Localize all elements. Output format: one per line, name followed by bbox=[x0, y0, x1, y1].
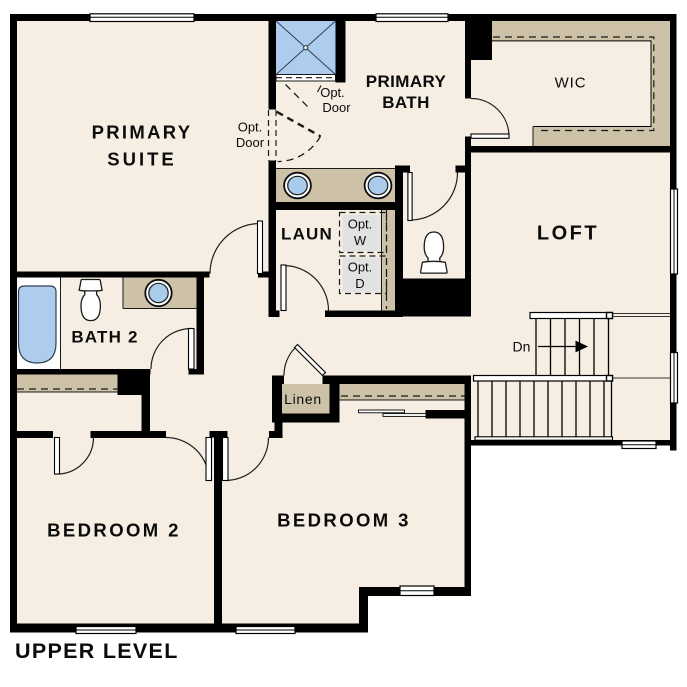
svg-text:Dn: Dn bbox=[513, 339, 531, 355]
svg-text:PRIMARY: PRIMARY bbox=[92, 122, 193, 143]
svg-text:LOFT: LOFT bbox=[537, 223, 599, 245]
svg-text:BEDROOM 2: BEDROOM 2 bbox=[47, 520, 181, 541]
svg-text:SUITE: SUITE bbox=[107, 149, 176, 170]
svg-text:BATH 2: BATH 2 bbox=[71, 328, 138, 347]
svg-text:Opt.: Opt. bbox=[320, 85, 345, 100]
svg-text:UPPER LEVEL: UPPER LEVEL bbox=[15, 639, 179, 663]
svg-text:Linen: Linen bbox=[284, 391, 322, 407]
svg-text:BEDROOM 3: BEDROOM 3 bbox=[277, 510, 411, 531]
svg-text:W: W bbox=[354, 233, 367, 248]
svg-text:D: D bbox=[355, 276, 364, 291]
svg-text:Opt.: Opt. bbox=[348, 260, 373, 275]
svg-text:PRIMARY: PRIMARY bbox=[366, 72, 447, 91]
svg-text:LAUN: LAUN bbox=[281, 225, 333, 244]
svg-text:Opt.: Opt. bbox=[348, 217, 373, 232]
svg-text:BATH: BATH bbox=[382, 93, 430, 112]
svg-text:WIC: WIC bbox=[555, 75, 587, 92]
svg-text:Door: Door bbox=[322, 100, 351, 115]
svg-text:Door: Door bbox=[236, 135, 265, 150]
svg-text:Opt.: Opt. bbox=[238, 120, 263, 135]
